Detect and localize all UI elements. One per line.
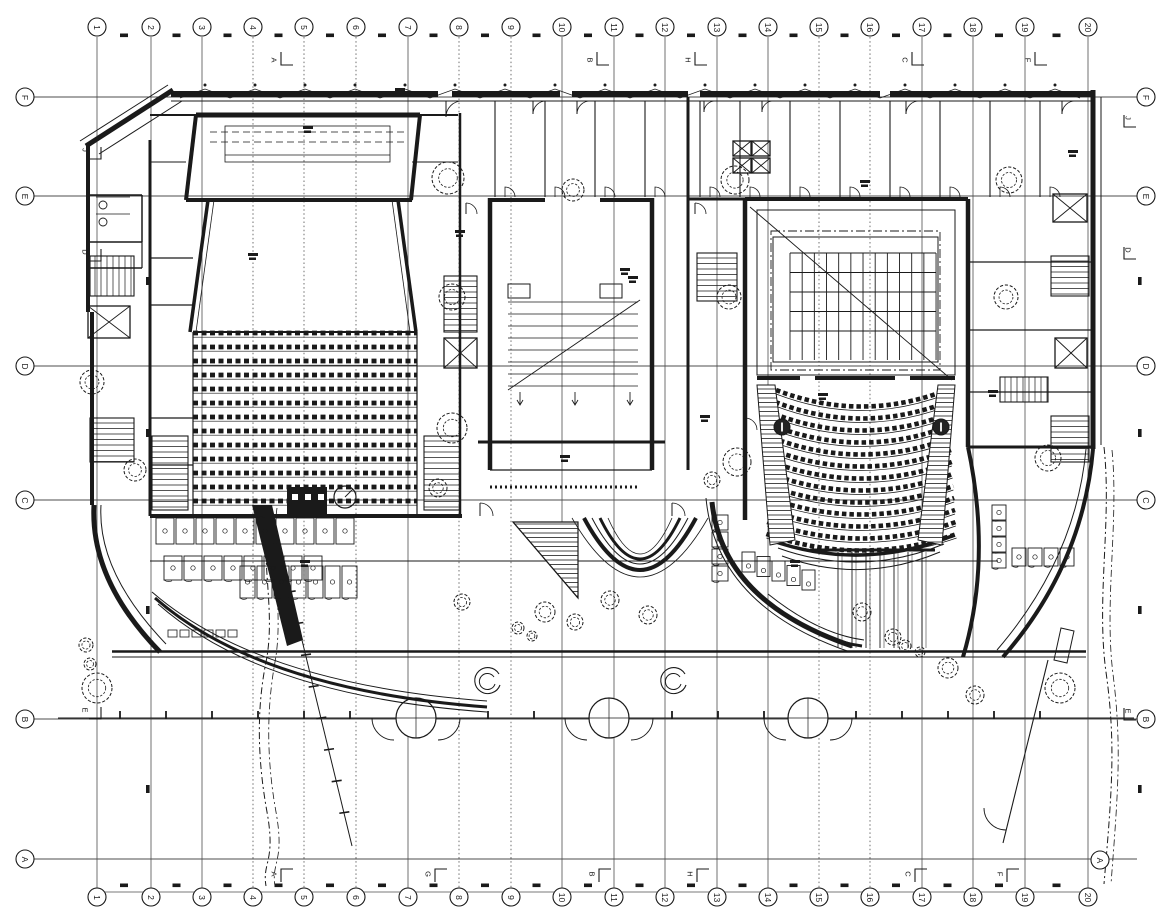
wc-stall <box>244 556 262 580</box>
annotation-smudge <box>303 126 313 129</box>
annotation-smudge <box>248 253 258 256</box>
grid-bubble-label-2: 2 <box>146 25 156 30</box>
dimension-tick <box>326 34 334 38</box>
grid-bubble-label-5: 5 <box>299 25 309 30</box>
stall-fixture <box>718 520 722 524</box>
annotation-smudge <box>300 560 310 563</box>
section-marker-F: F <box>1024 58 1033 63</box>
grid-bubble-label-1: 1 <box>92 25 102 30</box>
dimension-tick <box>944 34 952 38</box>
door-arc <box>906 101 919 114</box>
grid-bubble-label-19: 19 <box>1020 893 1030 903</box>
annotation-smudge <box>629 281 636 284</box>
dimension-tick <box>1138 785 1142 793</box>
grid-bubble-label-C: C <box>20 497 30 503</box>
door-arc <box>577 101 590 114</box>
dimension-tick <box>995 34 1003 38</box>
annotation-smudge <box>701 420 708 423</box>
dimension-tick <box>636 34 644 38</box>
grid-bubble-label-4: 4 <box>248 895 258 900</box>
wc-stall <box>712 566 728 581</box>
tree <box>82 641 90 649</box>
tree <box>87 661 94 668</box>
door-arc <box>830 718 852 740</box>
wc-stall <box>992 505 1006 520</box>
curved-ramp <box>592 518 688 564</box>
door-arc <box>533 101 546 114</box>
wc-stall <box>802 570 815 590</box>
wc-stall <box>342 566 357 598</box>
stall-fixture <box>1017 555 1021 559</box>
wc-stall <box>216 518 234 544</box>
wc-stall <box>196 518 214 544</box>
dimension-tick <box>790 884 798 888</box>
section-marker-H: H <box>684 57 693 62</box>
tree <box>567 614 583 630</box>
door-arc <box>800 187 810 197</box>
spiral-planter <box>479 674 495 690</box>
mullion-dot <box>854 84 857 87</box>
dimension-tick <box>533 34 541 38</box>
mullion-dot <box>254 84 257 87</box>
wc-stall <box>176 518 194 544</box>
door-arc <box>672 503 685 516</box>
grid-bubble-label-D: D <box>20 363 30 369</box>
stall-fixture <box>211 566 215 570</box>
hall-corner-box <box>600 284 622 298</box>
dimension-tick <box>790 34 798 38</box>
dimension-tick <box>892 34 900 38</box>
stall-fixture <box>997 542 1001 546</box>
grid-bubble-label-13: 13 <box>712 23 722 33</box>
dimension-tick <box>275 884 283 888</box>
tree <box>704 472 720 488</box>
door-arc <box>438 718 460 740</box>
section-marker-D: D <box>1124 247 1133 253</box>
wc-stall <box>204 556 222 580</box>
mullion-dot <box>804 84 807 87</box>
site-boundary <box>1103 447 1112 884</box>
stall-fixture <box>296 580 300 584</box>
tree <box>129 464 142 477</box>
stall-fixture <box>311 566 315 570</box>
tree <box>527 631 537 641</box>
stair <box>152 436 188 510</box>
wall-path <box>508 300 640 390</box>
stall-fixture <box>791 577 795 581</box>
annotation-smudge <box>396 93 403 96</box>
door-arc <box>762 101 773 112</box>
door-arc <box>984 808 1006 830</box>
wc-stall <box>184 556 202 580</box>
annotation-smudge <box>395 88 405 91</box>
dimension-tick <box>146 785 150 793</box>
wc-stall <box>787 566 800 586</box>
dimension-tick <box>146 606 150 614</box>
door-arc <box>631 718 653 740</box>
dimension-tick <box>378 34 386 38</box>
dimension-tick <box>1138 277 1142 285</box>
dimension-tick <box>739 34 747 38</box>
section-marker-bracket <box>89 707 101 719</box>
tree <box>970 690 980 700</box>
tree <box>1001 172 1016 187</box>
wc-fixture <box>99 218 107 226</box>
section-marker-bracket <box>1035 52 1047 65</box>
section-marker-C: C <box>901 57 910 63</box>
tree <box>529 633 535 639</box>
grid-bubble-label-17: 17 <box>917 23 927 33</box>
wc-stall <box>1028 548 1042 566</box>
grid-bubble-label-8: 8 <box>454 895 464 900</box>
wc-stall <box>336 518 354 544</box>
aisle-marker-bar <box>781 423 783 432</box>
stall-fixture <box>245 580 249 584</box>
stall-fixture <box>776 573 780 577</box>
annotation-smudge <box>1068 150 1078 153</box>
mullion-dot <box>1004 84 1007 87</box>
site-tick <box>339 812 349 813</box>
grid-bubble-label-D: D <box>1141 363 1151 369</box>
tree <box>429 479 447 497</box>
stall-fixture <box>231 566 235 570</box>
grid-bubble-label-1: 1 <box>92 895 102 900</box>
kiosk-cell <box>305 494 311 500</box>
wc-stall <box>992 521 1006 536</box>
grid-bubble-label-6: 6 <box>351 895 361 900</box>
wc-stall <box>1012 548 1026 566</box>
tree <box>457 597 466 606</box>
tree <box>942 662 954 674</box>
stall-fixture <box>330 580 334 584</box>
wc-stall <box>772 561 785 581</box>
section-marker-bracket <box>695 52 707 65</box>
stall-fixture <box>203 529 207 533</box>
mullion-dot <box>604 84 607 87</box>
locker <box>168 630 177 637</box>
door-arc <box>1062 101 1075 114</box>
tree <box>539 606 551 618</box>
section-markers: ABHCFAGBHCFJDEJDE <box>81 52 1137 882</box>
door-arc <box>505 187 515 197</box>
wc-stall <box>164 556 182 580</box>
section-marker-bracket <box>597 52 609 65</box>
section-marker-C: C <box>904 871 913 877</box>
seat-row-arc <box>776 390 947 407</box>
grid-bubble-label-3: 3 <box>197 895 207 900</box>
dimension-tick <box>1053 884 1061 888</box>
dimension-tick <box>275 34 283 38</box>
section-marker-bracket <box>89 147 101 159</box>
round-desk-arm <box>345 489 353 497</box>
dimension-tick <box>1053 34 1061 38</box>
wc-stall <box>308 566 323 598</box>
grid-bubble-label-A: A <box>20 857 30 863</box>
tree <box>722 290 736 304</box>
dimension-tick <box>326 884 334 888</box>
grid-bubble-label-2: 2 <box>146 895 156 900</box>
tree <box>79 638 93 652</box>
tree <box>729 454 745 470</box>
section-marker-F: F <box>996 872 1005 877</box>
grid-bubbles: 1122334455667788991010111112121313141415… <box>16 18 1155 906</box>
door-arc <box>1000 187 1010 197</box>
section-marker-bracket <box>435 869 447 882</box>
tree <box>443 419 460 436</box>
annotation-smudge <box>456 235 463 238</box>
door-arc <box>704 101 715 112</box>
wc-stall <box>325 566 340 598</box>
stall-fixture <box>283 529 287 533</box>
grid-bubble-label-E: E <box>20 194 30 200</box>
tree <box>727 172 743 188</box>
mullion-dot <box>554 84 557 87</box>
site-boundary <box>1110 450 1118 884</box>
stall-fixture <box>171 566 175 570</box>
stall-fixture <box>761 568 765 572</box>
curved-ramp <box>584 518 696 570</box>
grid-bubble-label-15: 15 <box>814 23 824 33</box>
tree <box>1040 450 1055 465</box>
grid-bubble-label-9: 9 <box>506 25 516 30</box>
tree <box>433 483 443 493</box>
annotation-smudge <box>819 398 826 401</box>
annotation-smudge <box>988 390 998 393</box>
tree <box>999 290 1013 304</box>
grid-bubble-label-13: 13 <box>712 893 722 903</box>
annotation-smudge <box>861 185 868 188</box>
grid-bubble-label-F: F <box>20 95 30 100</box>
tree <box>899 640 911 652</box>
annotation-smudge <box>818 393 828 396</box>
door-arc <box>750 187 760 197</box>
door-arc <box>695 203 706 214</box>
mullion-dot <box>654 84 657 87</box>
dimension-tick <box>224 884 232 888</box>
tree <box>994 285 1018 309</box>
tree <box>643 610 653 620</box>
dimension-tick <box>1138 606 1142 614</box>
wall-path <box>80 85 168 141</box>
tree <box>1035 445 1061 471</box>
dimension-tick <box>430 884 438 888</box>
grid-bubble-label-4: 4 <box>248 25 258 30</box>
grid-bubble-label-11: 11 <box>609 23 619 32</box>
stall-fixture <box>718 571 722 575</box>
grid-bubble-label-9: 9 <box>506 895 516 900</box>
dimension-tick <box>173 884 181 888</box>
annotation-smudge <box>621 273 628 276</box>
grid-bubble-label-7: 7 <box>403 25 413 30</box>
mullion-dot <box>204 84 207 87</box>
stall-fixture <box>746 564 750 568</box>
kiosk <box>287 487 327 515</box>
grid-bubble-label-19: 19 <box>1020 23 1030 33</box>
dimension-tick <box>687 34 695 38</box>
wall-path <box>186 115 196 200</box>
grid-bubble-label-18: 18 <box>968 893 978 903</box>
dimension-tick <box>995 884 1003 888</box>
door-arc <box>850 187 860 197</box>
stall-fixture <box>343 529 347 533</box>
annotation-smudge <box>249 258 256 261</box>
door-arc <box>655 187 665 197</box>
dimension-tick <box>636 884 644 888</box>
site-line <box>1003 660 1048 843</box>
tree <box>570 617 579 626</box>
grid-bubble-label-C: C <box>1141 497 1151 503</box>
stage-room <box>757 210 955 375</box>
wc-stall <box>304 556 322 580</box>
grid-bubble-label-6: 6 <box>351 25 361 30</box>
dimension-tick <box>739 884 747 888</box>
wc-stall <box>156 518 174 544</box>
tree <box>437 413 467 443</box>
stall-fixture <box>997 526 1001 530</box>
grid-bubble-label-18: 18 <box>968 23 978 33</box>
grid-bubble-label-10: 10 <box>557 893 567 903</box>
grid-bubble-label-12: 12 <box>660 23 670 33</box>
grid-bubble-label-14: 14 <box>763 23 773 33</box>
curved-ramp <box>600 518 680 559</box>
grid-bubble-label-17: 17 <box>917 893 927 903</box>
section-marker-bracket <box>599 869 611 882</box>
site-tick <box>301 654 311 655</box>
grid-bubble-label-5: 5 <box>299 895 309 900</box>
dimension-tick <box>224 34 232 38</box>
grid-bubble-label-B: B <box>20 717 30 723</box>
grid-bubble-label-15: 15 <box>814 893 824 903</box>
door-arc <box>555 187 565 197</box>
door-arc <box>900 187 910 197</box>
wc-stall <box>236 518 254 544</box>
grid-bubble-label-20: 20 <box>1083 893 1093 903</box>
wc-stall <box>224 556 242 580</box>
tree <box>512 622 524 634</box>
dimension-tick <box>687 884 695 888</box>
grid-bubble-label-E: E <box>1141 194 1151 200</box>
grid-bubble-label-3: 3 <box>197 25 207 30</box>
grid-bubble-label-16: 16 <box>865 23 875 33</box>
door-arc <box>480 503 493 516</box>
section-marker-D: D <box>81 249 90 255</box>
floor-plan-sheet: 1122334455667788991010111112121313141415… <box>0 0 1170 922</box>
dimension-tick <box>841 34 849 38</box>
grid-bubble-label-8: 8 <box>454 25 464 30</box>
mullion-dot <box>904 84 907 87</box>
wall-path <box>86 90 173 146</box>
door-arc <box>372 718 394 740</box>
annotation-smudge <box>989 395 996 398</box>
mullion-dot <box>1054 84 1057 87</box>
site-tick <box>309 686 319 687</box>
stall-fixture <box>347 580 351 584</box>
wall-path <box>765 600 862 646</box>
tree <box>562 179 584 201</box>
right-auditorium <box>706 199 979 657</box>
mullion-dot <box>754 84 757 87</box>
tree <box>853 603 871 621</box>
site-tick <box>332 780 342 781</box>
section-marker-J: J <box>81 148 90 152</box>
dimension-tick <box>1138 429 1142 437</box>
grid-bubble-label-16: 16 <box>865 893 875 903</box>
mullion-dot <box>354 84 357 87</box>
section-marker-bracket <box>281 869 293 882</box>
curved-ramp <box>608 518 672 554</box>
annotation-smudge <box>860 180 870 183</box>
section-marker-G: G <box>424 871 433 877</box>
stall-fixture <box>291 566 295 570</box>
kiosk-cell <box>318 494 324 500</box>
section-marker-A: A <box>270 57 279 62</box>
grid-bubble-label-10: 10 <box>557 23 567 33</box>
stair <box>1051 416 1089 462</box>
stall-fixture <box>997 510 1001 514</box>
tree <box>639 606 657 624</box>
wall-path <box>963 447 979 657</box>
annotation-smudge <box>455 230 465 233</box>
tree <box>966 686 984 704</box>
section-marker-bracket <box>697 869 709 882</box>
structural-grid <box>34 34 1142 893</box>
wall-wedge <box>252 505 303 646</box>
dimension-tick <box>892 884 900 888</box>
tree <box>454 594 470 610</box>
door-arc <box>565 718 587 740</box>
grid-bubble-label-7: 7 <box>403 895 413 900</box>
stall-fixture <box>163 529 167 533</box>
stall-fixture <box>806 582 810 586</box>
annotation-smudge <box>561 460 568 463</box>
tree <box>84 658 96 670</box>
section-marker-bracket <box>281 52 293 65</box>
mullion-dot <box>704 84 707 87</box>
wall-path <box>411 115 420 200</box>
wall-path <box>94 505 160 652</box>
annotation-smudge <box>560 455 570 458</box>
section-marker-bracket <box>1007 869 1019 882</box>
dimension-tick <box>944 884 952 888</box>
grid-bubble-label-B: B <box>1141 717 1151 723</box>
section-marker-E: E <box>1124 708 1133 713</box>
ramp <box>1054 628 1074 663</box>
annotation-smudge <box>620 268 630 271</box>
tree <box>721 166 749 194</box>
section-marker-B: B <box>586 57 595 62</box>
stall-fixture <box>313 580 317 584</box>
site-tick <box>324 749 334 750</box>
stair <box>424 436 460 510</box>
dimension-tick <box>481 884 489 888</box>
section-marker-B: B <box>588 871 597 876</box>
dimension-tick <box>378 884 386 888</box>
door-arc <box>710 187 720 197</box>
section-marker-A: A <box>270 871 279 876</box>
stage-dashdot <box>771 231 940 370</box>
stall-fixture <box>323 529 327 533</box>
dimension-tick <box>533 884 541 888</box>
stall-fixture <box>243 529 247 533</box>
tree <box>885 629 901 645</box>
kiosk-cell <box>292 494 298 500</box>
section-marker-bracket <box>915 869 927 882</box>
dimension-tick <box>841 884 849 888</box>
door-arc <box>950 187 960 197</box>
stall-fixture <box>183 529 187 533</box>
wc-stall <box>992 537 1006 552</box>
locker <box>180 630 189 637</box>
